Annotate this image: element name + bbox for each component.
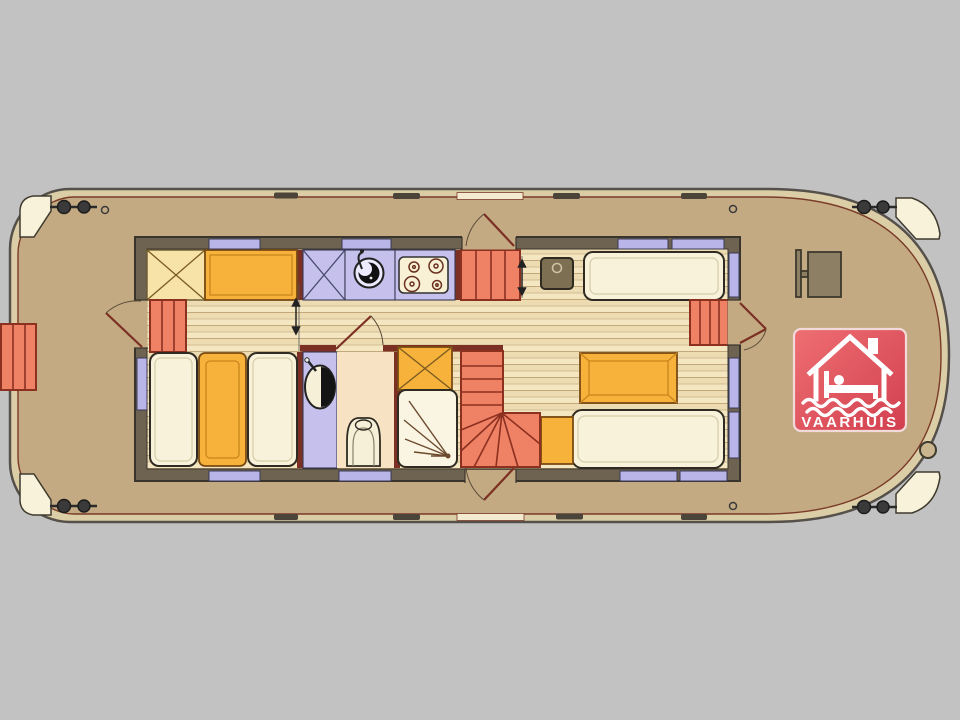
entry-steps-top — [461, 250, 520, 300]
sofa-top — [584, 252, 724, 300]
side-cabinet — [541, 417, 573, 464]
porthole — [920, 442, 936, 458]
shower — [398, 390, 457, 467]
houseboat-floorplan: VAARHUIS — [0, 0, 960, 720]
aft-steps — [690, 300, 728, 345]
bow-swim-steps — [1, 324, 36, 390]
galley — [303, 249, 455, 300]
window — [672, 239, 724, 249]
bed-left — [150, 353, 197, 466]
window — [137, 358, 147, 410]
window — [209, 239, 260, 249]
bow-cabin — [147, 250, 297, 466]
window — [680, 471, 727, 481]
window — [339, 471, 391, 481]
gangway-strip-bottom — [457, 514, 524, 521]
logo-text: VAARHUIS — [801, 414, 898, 431]
window — [618, 239, 668, 249]
window — [729, 253, 739, 297]
window — [729, 412, 739, 458]
window — [209, 471, 260, 481]
floorplan-canvas: VAARHUIS — [0, 0, 960, 720]
wood-heater — [541, 258, 573, 289]
dresser-counter — [205, 250, 297, 300]
interior-wall — [300, 345, 336, 352]
window — [620, 471, 677, 481]
bathroom — [303, 347, 457, 468]
toilet — [347, 418, 380, 466]
bed-right — [248, 353, 297, 466]
stove — [399, 257, 448, 293]
sofa-bottom — [572, 410, 724, 468]
storage-cabinet-x — [398, 347, 452, 390]
window — [729, 358, 739, 408]
vaarhuis-logo: VAARHUIS — [794, 329, 906, 431]
window — [342, 239, 391, 249]
gangway-strip-top — [457, 193, 523, 200]
bow-steps — [150, 300, 186, 352]
